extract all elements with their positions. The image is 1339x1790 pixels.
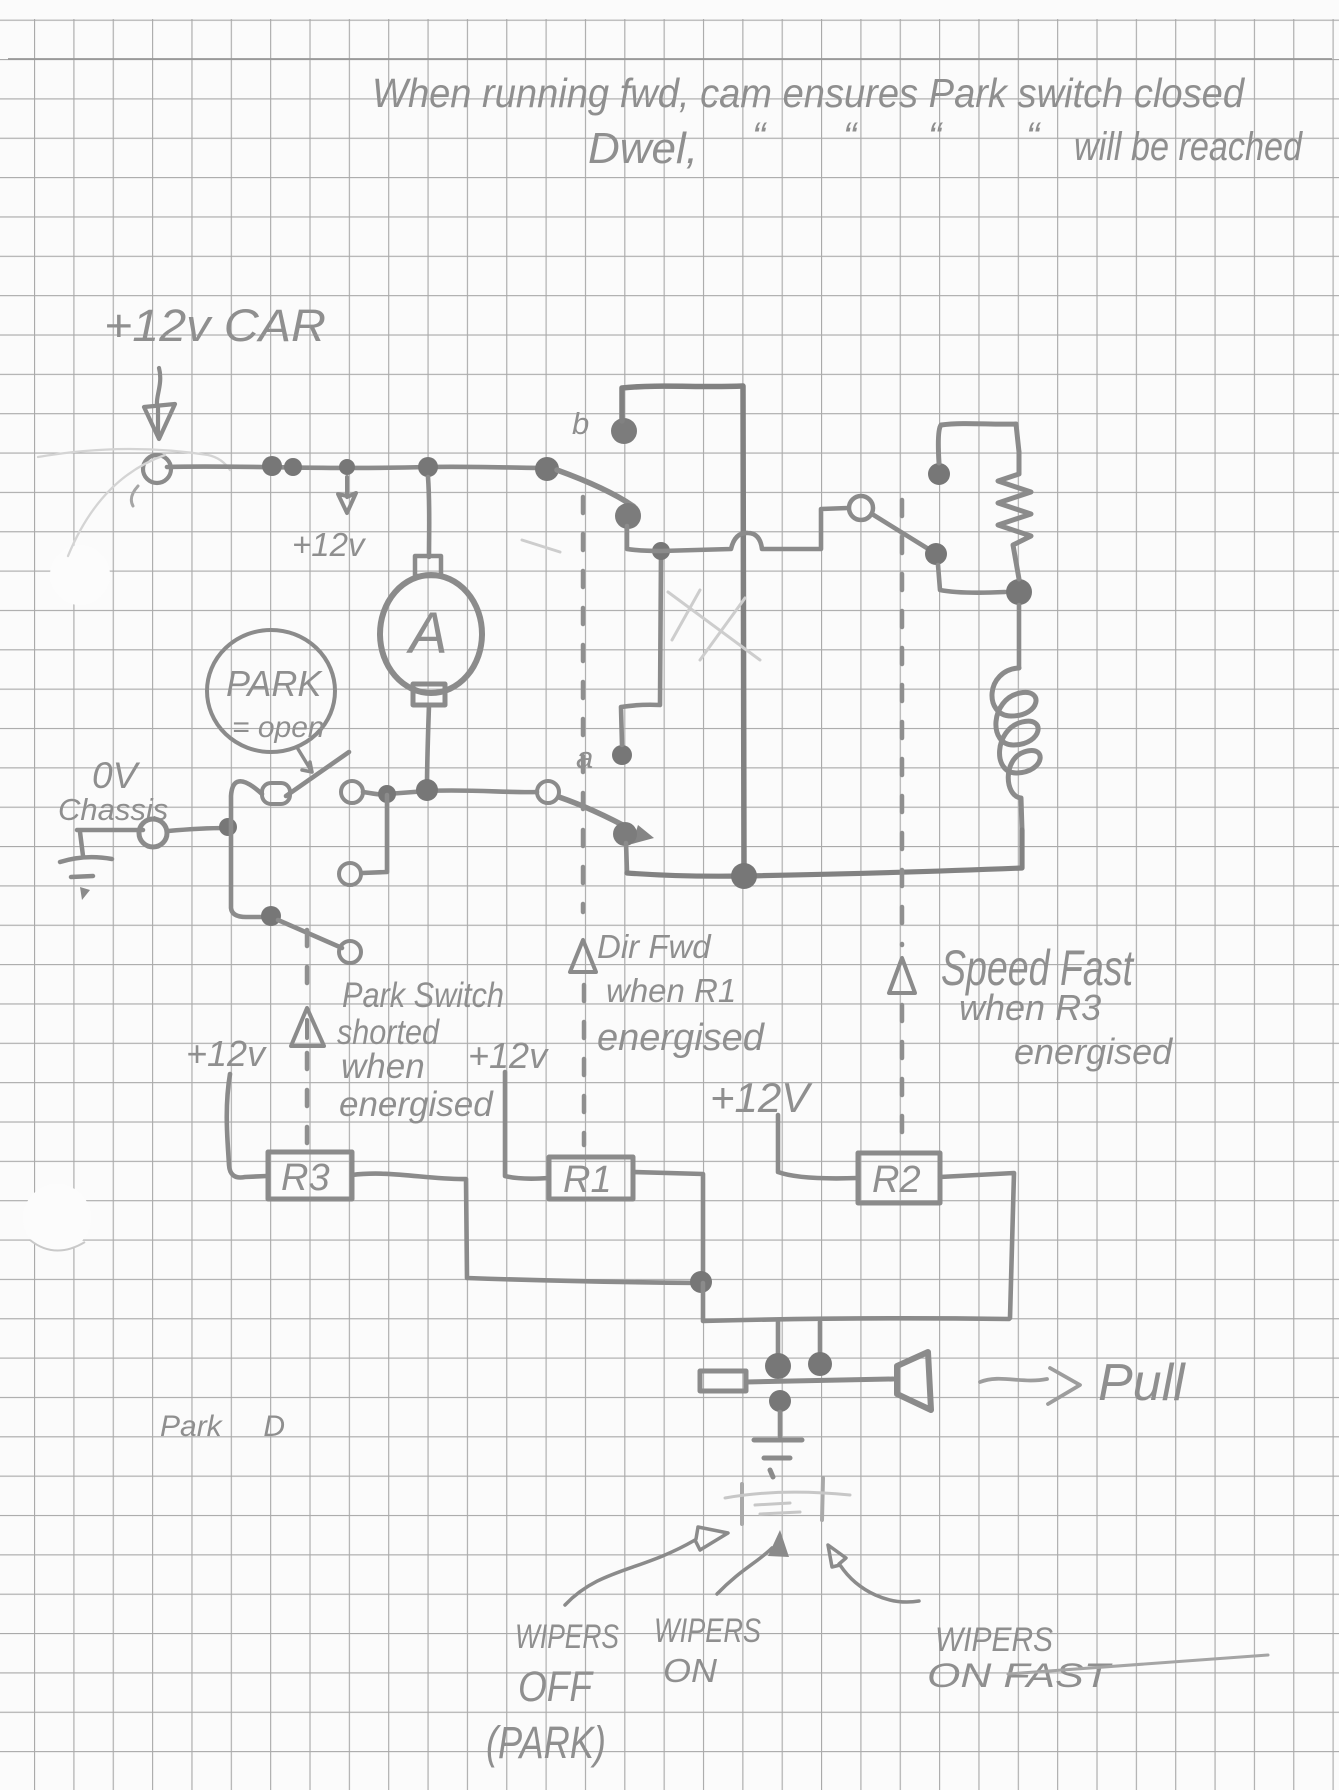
svg-text:WIPERS: WIPERS — [935, 1621, 1053, 1659]
svg-text:OFF: OFF — [518, 1663, 594, 1711]
svg-text:when R3: when R3 — [959, 987, 1101, 1028]
svg-text:Chassis: Chassis — [58, 792, 168, 827]
svg-text:when: when — [341, 1047, 425, 1086]
svg-text:R3: R3 — [281, 1157, 330, 1199]
svg-text:0V: 0V — [92, 755, 141, 796]
svg-text:when R1: when R1 — [606, 972, 736, 1009]
svg-text:= open: = open — [232, 711, 325, 744]
svg-text:(PARK): (PARK) — [486, 1717, 606, 1768]
svg-text:+12V: +12V — [710, 1074, 813, 1121]
svg-text:energised: energised — [597, 1017, 766, 1059]
svg-text:Park Switch: Park Switch — [342, 976, 504, 1015]
svg-text:PARK: PARK — [226, 663, 323, 704]
svg-text:+12v: +12v — [468, 1035, 549, 1076]
svg-text:+12v: +12v — [186, 1033, 267, 1074]
svg-text:+12v CAR: +12v CAR — [104, 300, 326, 351]
svg-text:Dwel,: Dwel, — [588, 124, 698, 173]
svg-text:energised: energised — [339, 1085, 494, 1124]
svg-text:+12v: +12v — [292, 526, 367, 563]
svg-text:WIPERS: WIPERS — [654, 1612, 761, 1650]
svg-text:will be reached: will be reached — [1074, 125, 1303, 169]
svg-text:b: b — [572, 406, 589, 441]
svg-text:energised: energised — [1014, 1031, 1173, 1072]
svg-text:Pull: Pull — [1098, 1354, 1186, 1412]
svg-text:ON: ON — [663, 1652, 717, 1689]
svg-text:When running fwd, cam ensures: When running fwd, cam ensures Park switc… — [372, 70, 1245, 116]
svg-text:A: A — [406, 601, 448, 666]
svg-text:WIPERS: WIPERS — [515, 1618, 619, 1656]
svg-text:R1: R1 — [563, 1159, 612, 1201]
svg-text:Park D: Park D — [160, 1410, 285, 1443]
svg-text:Dir Fwd: Dir Fwd — [597, 928, 712, 965]
svg-text:ON FAST: ON FAST — [927, 1657, 1113, 1695]
svg-text:R2: R2 — [872, 1159, 921, 1201]
